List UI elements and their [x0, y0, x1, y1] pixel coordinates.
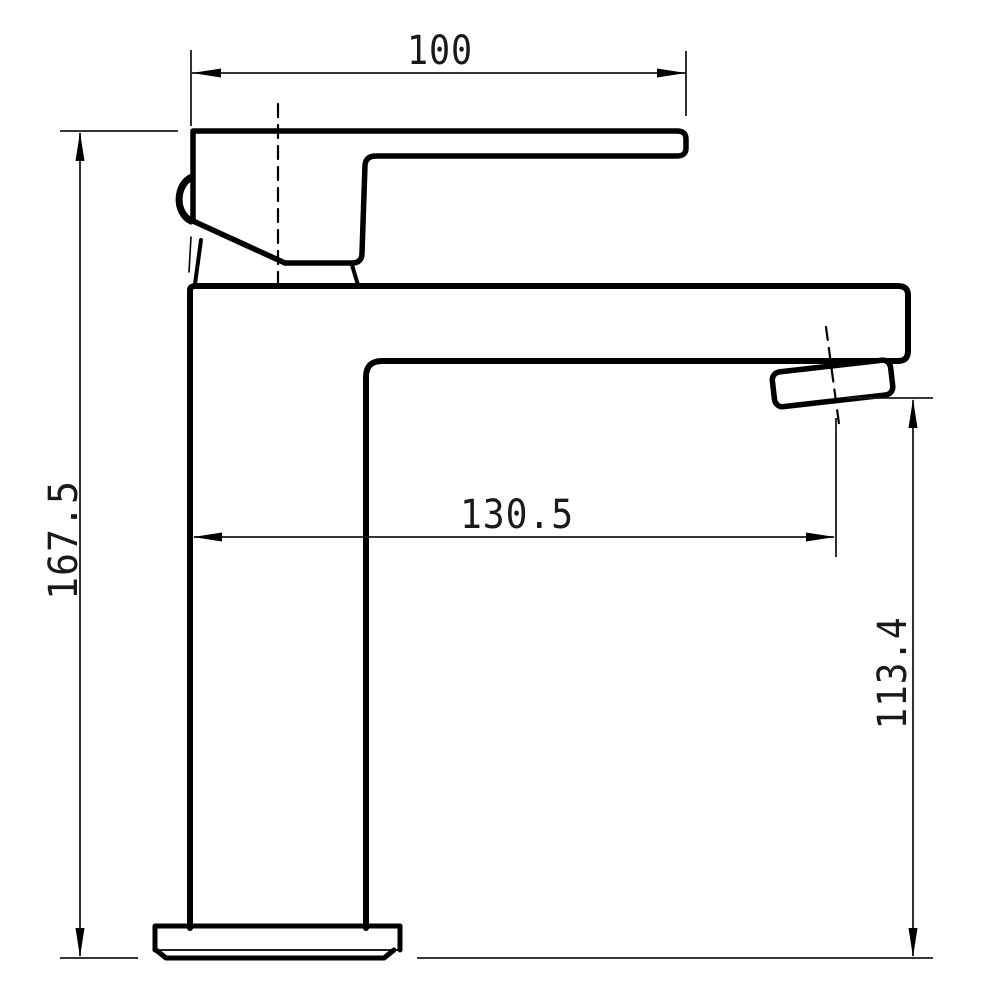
dimension-top-width: 100 [191, 28, 686, 126]
arrowhead-up [76, 132, 85, 161]
dimension-overall-height: 167.5 [41, 131, 178, 958]
dimension-label-spout-reach: 130.5 [460, 492, 574, 538]
handle-tip-cap [179, 177, 192, 221]
spout-aerator [771, 359, 893, 407]
handle-collar-thin-line [189, 237, 191, 272]
dimension-label-outlet-height: 113.4 [870, 617, 916, 730]
dimension-spout-reach: 130.5 [193, 418, 836, 557]
technical-drawing-canvas: 100 167.5 130.5 [0, 0, 1000, 1000]
handle-collar-right-edge [352, 265, 358, 285]
dimension-annotations: 100 167.5 130.5 [41, 28, 933, 958]
handle-collar-left-edge [195, 240, 201, 284]
faucet-dimension-drawing: 100 167.5 130.5 [0, 0, 1000, 1000]
arrowhead-up [909, 399, 918, 428]
handle-lever [193, 131, 686, 263]
arrowhead-left [193, 533, 222, 542]
dimension-label-overall-height: 167.5 [41, 480, 87, 600]
arrowhead-left [192, 69, 221, 78]
base-flange-bottom [156, 950, 394, 958]
dimension-label-top-width: 100 [407, 28, 473, 74]
arrowhead-down [76, 928, 85, 957]
arrowhead-right [657, 69, 686, 78]
arrowhead-right [806, 533, 835, 542]
dimension-outlet-height: 113.4 [417, 398, 933, 958]
arrowhead-down [909, 928, 918, 957]
